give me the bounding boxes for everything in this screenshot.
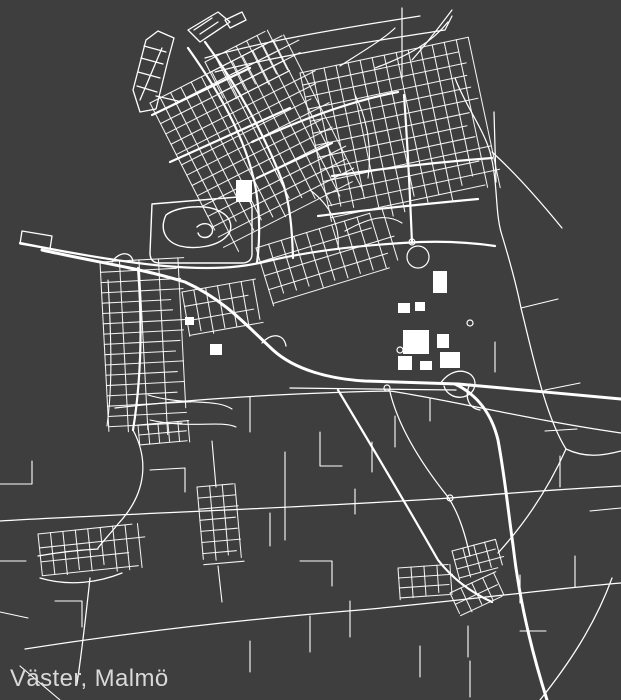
roundabout [397, 347, 403, 353]
street-map-svg [0, 0, 621, 700]
roundabout [384, 385, 390, 391]
roundabout [467, 320, 473, 326]
layer-piers [20, 12, 246, 249]
map-title: Väster, Malmö [10, 665, 169, 693]
building-block [398, 356, 412, 370]
layer-quarry [150, 197, 252, 263]
street-grid [38, 523, 148, 579]
building-block [420, 361, 432, 370]
building-block [185, 317, 194, 325]
street-grid [452, 538, 507, 579]
roundabout [407, 246, 429, 268]
layer-major-streets [20, 42, 495, 602]
building-block [210, 344, 222, 355]
building-block [403, 330, 429, 354]
building-block [433, 271, 447, 293]
layer-motorway [42, 250, 621, 700]
building-block [398, 303, 410, 313]
street-grid [256, 208, 403, 305]
layer-minor-roads [0, 95, 621, 700]
map-canvas: Väster, Malmö [0, 0, 621, 700]
building-block [440, 352, 460, 368]
building-block [236, 180, 252, 202]
building-block [437, 334, 449, 348]
street-grid [197, 483, 244, 564]
street-grid [100, 258, 193, 438]
building-block [415, 302, 425, 311]
